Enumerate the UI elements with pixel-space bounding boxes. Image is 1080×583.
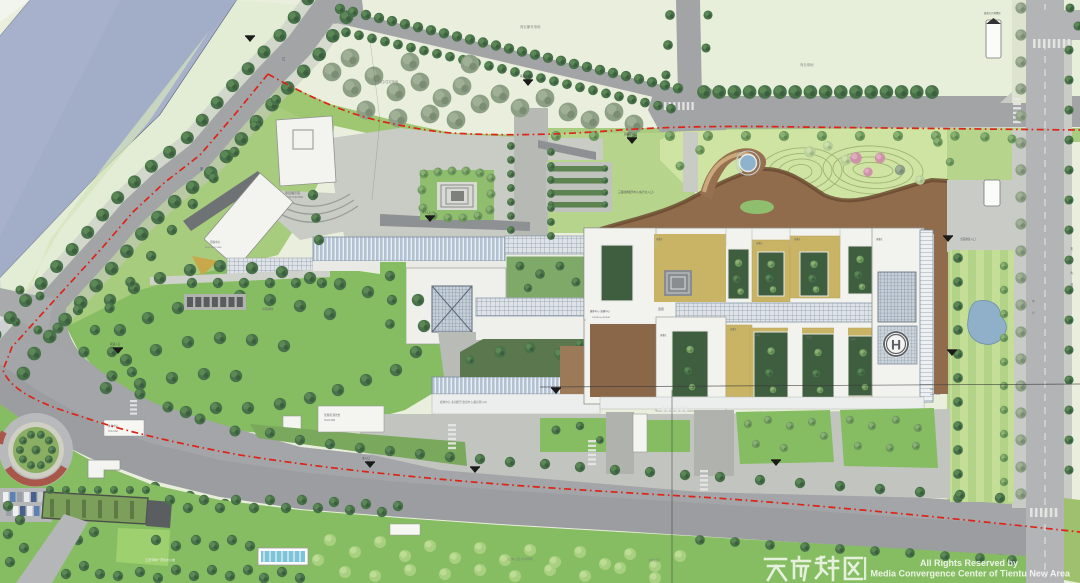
svg-text:H=22.00M: H=22.00M (324, 419, 335, 422)
svg-text:2F/1F H=12.00M: 2F/1F H=12.00M (205, 247, 222, 249)
svg-text:商业兼写用地: 商业兼写用地 (520, 24, 541, 29)
svg-text:行: 行 (1032, 311, 1035, 315)
svg-text:媒体中心·演播中心: 媒体中心·演播中心 (590, 309, 611, 313)
svg-text:旅游大巴停靠区: 旅游大巴停靠区 (984, 11, 1001, 15)
svg-text:All Rights Reserved by: All Rights Reserved by (920, 558, 1018, 568)
svg-text:Media Convergence Center of Ti: Media Convergence Center of Tientu New A… (870, 569, 1071, 579)
svg-text:货运入口: 货运入口 (110, 342, 121, 346)
svg-text:演播厅入口: 演播厅入口 (624, 132, 637, 136)
svg-text:6F/5F: 6F/5F (930, 389, 936, 391)
svg-text:景观塔 观景台: 景观塔 观景台 (324, 413, 341, 417)
svg-text:游客中心: 游客中心 (210, 240, 221, 244)
svg-text:H=23.95M: H=23.95M (930, 394, 940, 396)
svg-text:商住/住宅用地: 商住/住宅用地 (378, 79, 399, 84)
svg-text:H=12.0M: H=12.0M (108, 430, 118, 433)
svg-text:12F/6F H=49.95M: 12F/6F H=49.95M (592, 317, 610, 319)
svg-text:山体公园 休闲绿地: 山体公园 休闲绿地 (508, 556, 533, 561)
svg-text:项目次入口: 项目次入口 (520, 74, 533, 78)
svg-text:媒体中心·多功能厅(会议中心)展示区(m2): 媒体中心·多功能厅(会议中心)展示区(m2) (440, 400, 487, 404)
svg-text:江安河畔广茂亲水公地: 江安河畔广茂亲水公地 (145, 557, 175, 562)
svg-text:次入口: 次入口 (422, 210, 430, 214)
svg-text:项目展示馆: 项目展示馆 (285, 190, 300, 195)
svg-text:主入口: 主入口 (362, 456, 370, 460)
svg-text:连廊: 连廊 (658, 306, 664, 311)
svg-text:商业用地: 商业用地 (800, 62, 814, 67)
svg-text:山体公园: 山体公园 (648, 558, 659, 562)
svg-text:安: 安 (200, 166, 203, 171)
svg-text:车: 车 (1032, 299, 1035, 303)
svg-text:景观绿地: 景观绿地 (262, 307, 273, 311)
svg-text:全民健身入口: 全民健身入口 (960, 237, 976, 241)
svg-text:三级媒体服务中心(综合主入口): 三级媒体服务中心(综合主入口) (618, 190, 654, 194)
svg-text:H: H (891, 337, 901, 353)
